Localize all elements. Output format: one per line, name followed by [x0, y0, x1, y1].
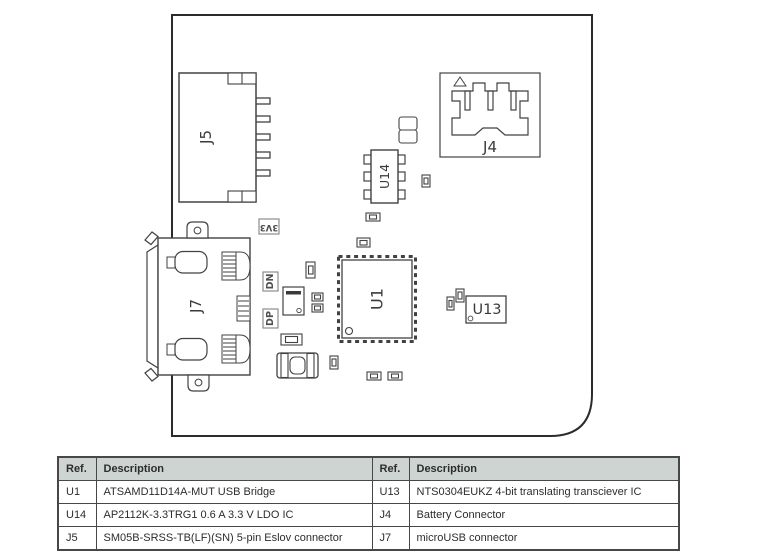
header-ref-2: Ref. — [372, 457, 409, 481]
net-label-3v3: 3V3 — [260, 222, 278, 232]
j7-mount-lug — [187, 222, 208, 238]
cell-ref: U13 — [372, 481, 409, 504]
pad-mark — [370, 215, 377, 219]
j7-anchor-neck — [167, 257, 175, 268]
pad-mark — [332, 359, 336, 366]
j4-label: J4 — [482, 138, 497, 156]
table-header-row: Ref. Description Ref. Description — [58, 457, 679, 481]
u13-label: U13 — [472, 302, 501, 318]
header-description-1: Description — [96, 457, 372, 481]
pad-pair — [399, 130, 417, 143]
pad-mark — [371, 374, 378, 378]
j7-contact-block-middle — [237, 296, 250, 321]
cell-ref: J5 — [58, 527, 96, 551]
cell-description: microUSB connector — [409, 527, 679, 551]
j7-shield-tab — [145, 369, 158, 382]
j5-pin — [256, 134, 271, 140]
j7-shield-tab — [145, 232, 158, 245]
table-row: J5 SM05B-SRSS-TB(LF)(SN) 5-pin Eslov con… — [58, 527, 679, 551]
cell-ref: U1 — [58, 481, 96, 504]
j5-pin — [256, 98, 271, 104]
u1-label: U1 — [368, 288, 387, 310]
pad-mark — [360, 241, 367, 246]
header-ref-1: Ref. — [58, 457, 96, 481]
pad-mark — [315, 306, 321, 310]
transistor-component — [283, 287, 304, 315]
j7-anchor-neck — [167, 344, 175, 355]
pad-mark — [458, 292, 462, 299]
pad-mark — [424, 178, 428, 184]
j5-pin — [256, 152, 271, 158]
u14-label: U14 — [377, 164, 392, 189]
crystal-cap — [281, 354, 288, 378]
j7-anchor-body — [175, 252, 207, 274]
cell-description: SM05B-SRSS-TB(LF)(SN) 5-pin Eslov connec… — [96, 527, 372, 551]
crystal-inner — [290, 357, 305, 374]
pcb-documentation-page: J5 J4 U14 — [0, 0, 764, 555]
cell-description: AP2112K-3.3TRG1 0.6 A 3.3 V LDO IC — [96, 504, 372, 527]
crystal-cap — [307, 354, 314, 378]
j5-pin — [256, 170, 271, 176]
pad-mark — [392, 374, 399, 378]
cell-ref: J7 — [372, 527, 409, 551]
pad-pair — [399, 117, 417, 130]
j7-contact-block-top — [222, 252, 250, 280]
pad-mark — [309, 266, 314, 274]
j7-label: J7 — [187, 299, 205, 314]
cell-ref: J4 — [372, 504, 409, 527]
cell-description: NTS0304EUKZ 4-bit translating transcieve… — [409, 481, 679, 504]
j7-contact-block-bottom — [222, 335, 250, 363]
j5-body — [179, 73, 256, 202]
reference-table: Ref. Description Ref. Description U1 ATS… — [57, 456, 680, 551]
table-row: U14 AP2112K-3.3TRG1 0.6 A 3.3 V LDO IC J… — [58, 504, 679, 527]
cell-ref: U14 — [58, 504, 96, 527]
pad-mark — [449, 301, 452, 308]
transistor-bar — [286, 291, 301, 295]
j5-label: J5 — [197, 130, 215, 145]
j7-front-flange — [147, 245, 158, 368]
cell-description: ATSAMD11D14A-MUT USB Bridge — [96, 481, 372, 504]
net-label-dp: DP — [265, 311, 276, 326]
net-label-dn: DN — [265, 274, 276, 290]
header-description-2: Description — [409, 457, 679, 481]
cell-description: Battery Connector — [409, 504, 679, 527]
pad-mark — [315, 295, 321, 299]
pad-mark — [286, 337, 298, 343]
j7-mount-lug — [188, 375, 209, 391]
j7-anchor-body — [175, 339, 207, 361]
table-row: U1 ATSAMD11D14A-MUT USB Bridge U13 NTS03… — [58, 481, 679, 504]
reference-table-section: Ref. Description Ref. Description U1 ATS… — [57, 456, 680, 551]
j5-pin — [256, 116, 271, 122]
connector-j5 — [179, 73, 270, 202]
